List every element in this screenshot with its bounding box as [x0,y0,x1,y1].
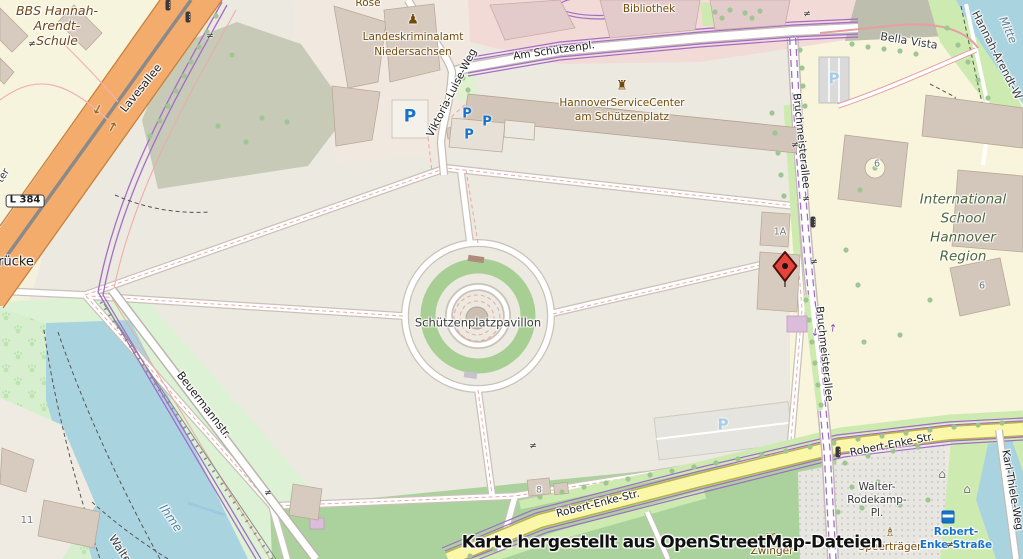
map-canvas[interactable]: RoseBBS Hannah-Arendt-SchuleLandeskrimin… [0,0,1023,559]
pavilion-building [466,307,488,329]
map-marker-icon[interactable] [770,250,800,290]
basemap-geometry [0,0,1023,559]
map-attribution: Karte hergestellt aus OpenStreetMap-Date… [462,535,882,552]
